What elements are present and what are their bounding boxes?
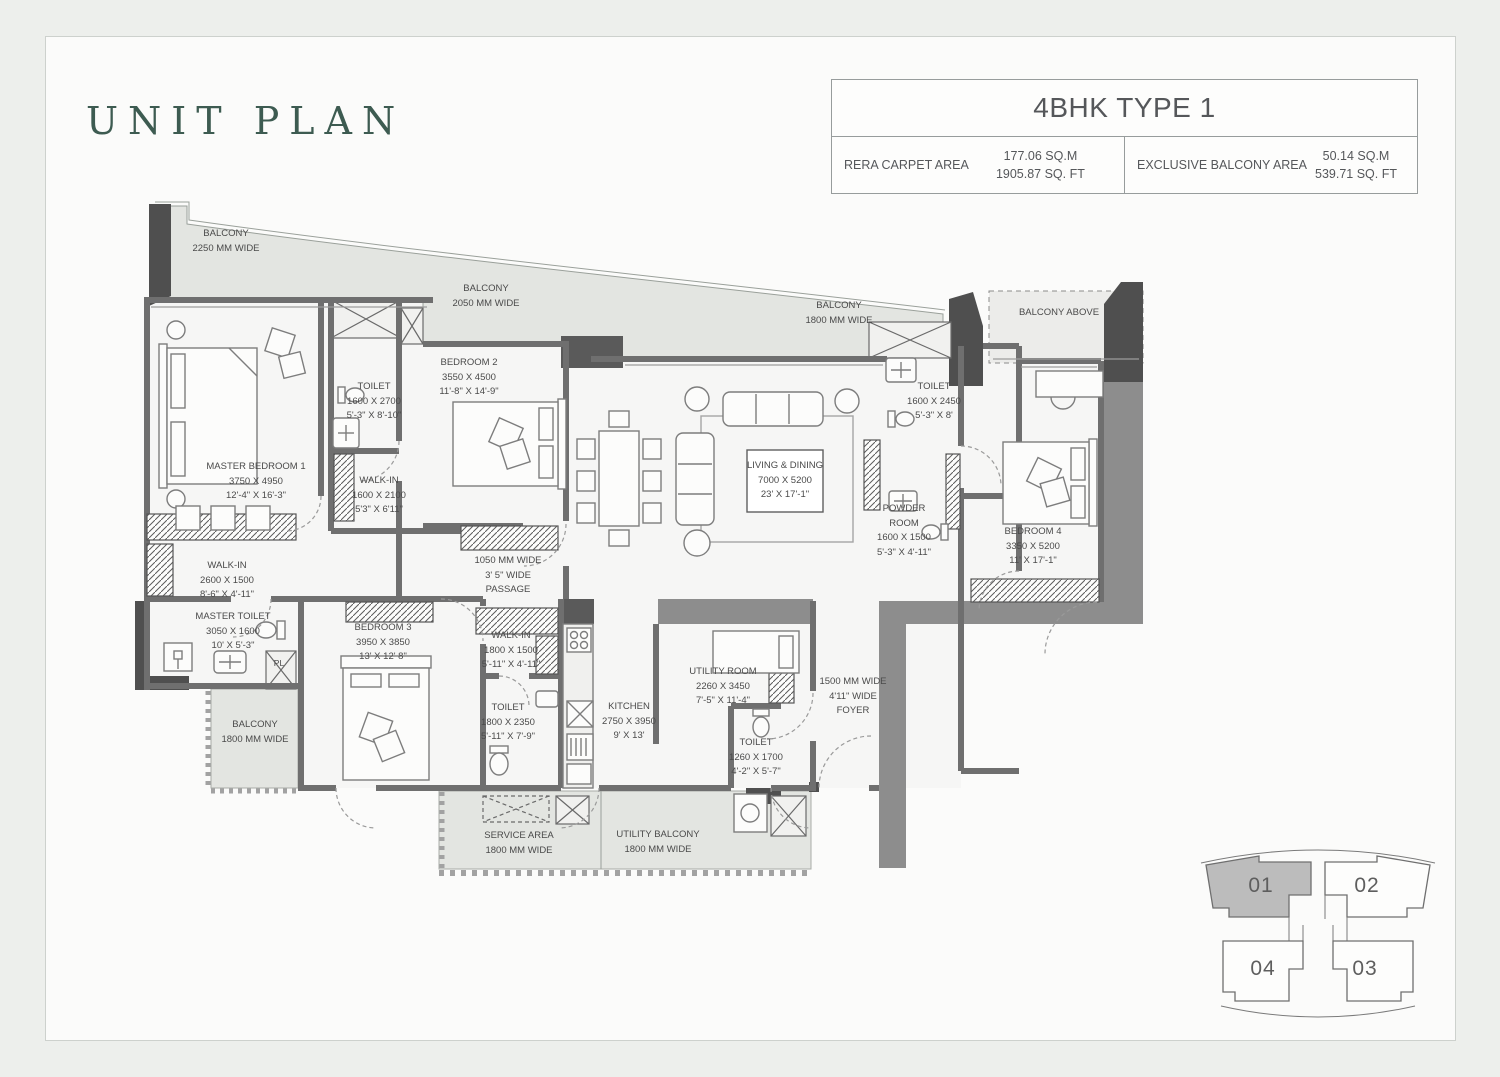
room-label-kitchen: KITCHEN2750 X 39509' X 13' [602, 700, 656, 744]
room-label-bedroom-3: BEDROOM 33950 X 385013' X 12' 8" [354, 621, 411, 665]
room-label-toilet-utility: TOILET1260 X 17004'-2" X 5'-7" [729, 736, 783, 780]
keyplan-unit-03-number: 03 [1352, 957, 1377, 981]
room-label-utility-balcony: UTILITY BALCONY1800 MM WIDE [616, 828, 699, 857]
balcony-area-cell: EXCLUSIVE BALCONY AREA 50.14 SQ.M 539.71… [1124, 137, 1417, 193]
rera-carpet-sqm: 177.06 SQ.M [1004, 149, 1078, 163]
room-label-walkin-1800: WALK-IN1800 X 15005'-11" X 4'-11" [482, 629, 541, 673]
room-label-utility-room: UTILITY ROOM2260 X 34507'-5" X 11'-4" [689, 665, 756, 709]
balcony-sqm: 50.14 SQ.M [1323, 149, 1390, 163]
room-label-toilet-bedroom-4: TOILET1600 X 24505'-3" X 8' [907, 380, 961, 424]
room-label-balcony-top-mid: BALCONY2050 MM WIDE [452, 282, 519, 311]
keyplan: 01 02 04 03 [1199, 829, 1437, 1024]
room-label-master-toilet: MASTER TOILET3050 X 160010' X 5'-3" [195, 610, 270, 654]
room-label-foyer: 1500 MM WIDE4'11" WIDEFOYER [819, 675, 886, 719]
room-label-powder-room: POWDERROOM1600 X 15005'-3" X 4'-11" [877, 502, 931, 560]
rera-carpet-area-label: RERA CARPET AREA [844, 158, 969, 172]
keyplan-unit-04-number: 04 [1250, 957, 1275, 981]
room-label-balcony-top-left: BALCONY2250 MM WIDE [192, 227, 259, 256]
unit-plan-page: UNIT PLAN 4BHK TYPE 1 RERA CARPET AREA 1… [0, 0, 1500, 1077]
balcony-sqft: 539.71 SQ. FT [1315, 167, 1397, 181]
room-label-passage: 1050 MM WIDE3' 5" WIDEPASSAGE [474, 554, 541, 598]
room-label-walkin-master: WALK-IN1600 X 21005'3" X 6'11" [352, 474, 406, 518]
unit-info-table: 4BHK TYPE 1 RERA CARPET AREA 177.06 SQ.M… [831, 79, 1418, 194]
rera-carpet-area-cell: RERA CARPET AREA 177.06 SQ.M 1905.87 SQ.… [832, 137, 1124, 193]
floorplan: BALCONY2250 MM WIDE BALCONY2050 MM WIDE … [131, 196, 1161, 886]
plan-card: UNIT PLAN 4BHK TYPE 1 RERA CARPET AREA 1… [45, 36, 1456, 1041]
rera-carpet-sqft: 1905.87 SQ. FT [996, 167, 1085, 181]
keyplan-graphic [1199, 829, 1437, 1024]
room-label-master-bedroom-1: MASTER BEDROOM 13750 X 495012'-4" X 16'-… [206, 460, 305, 504]
unit-type-title: 4BHK TYPE 1 [832, 80, 1417, 137]
room-label-balcony-left: BALCONY1800 MM WIDE [221, 718, 288, 747]
room-label-service-area: SERVICE AREA1800 MM WIDE [484, 829, 554, 858]
room-label-balcony-above: BALCONY ABOVE [1019, 306, 1099, 321]
keyplan-unit-01-number: 01 [1248, 874, 1273, 898]
room-label-living-dining: LIVING & DINING7000 X 520023' X 17'-1" [747, 459, 823, 503]
keyplan-unit-02-number: 02 [1354, 874, 1379, 898]
room-label-toilet-master: TOILET1600 X 27005'-3" X 8'-10" [347, 380, 402, 424]
page-title: UNIT PLAN [86, 99, 405, 143]
balcony-area-label: EXCLUSIVE BALCONY AREA [1137, 158, 1307, 172]
room-label-bedroom-2: BEDROOM 23550 X 450011'-8" X 14'-9" [439, 356, 498, 400]
room-label-walkin-2600: WALK-IN2600 X 15008'-6" X 4'-11" [200, 559, 254, 603]
room-label-toilet-bedroom-3: TOILET1800 X 23505'-11" X 7'-9" [481, 701, 535, 745]
room-label-balcony-top-right: BALCONY1800 MM WIDE [805, 299, 872, 328]
room-label-bedroom-4: BEDROOM 43350 X 520011' X 17'-1" [1004, 525, 1061, 569]
room-label-pl-shaft: PL [274, 656, 284, 671]
